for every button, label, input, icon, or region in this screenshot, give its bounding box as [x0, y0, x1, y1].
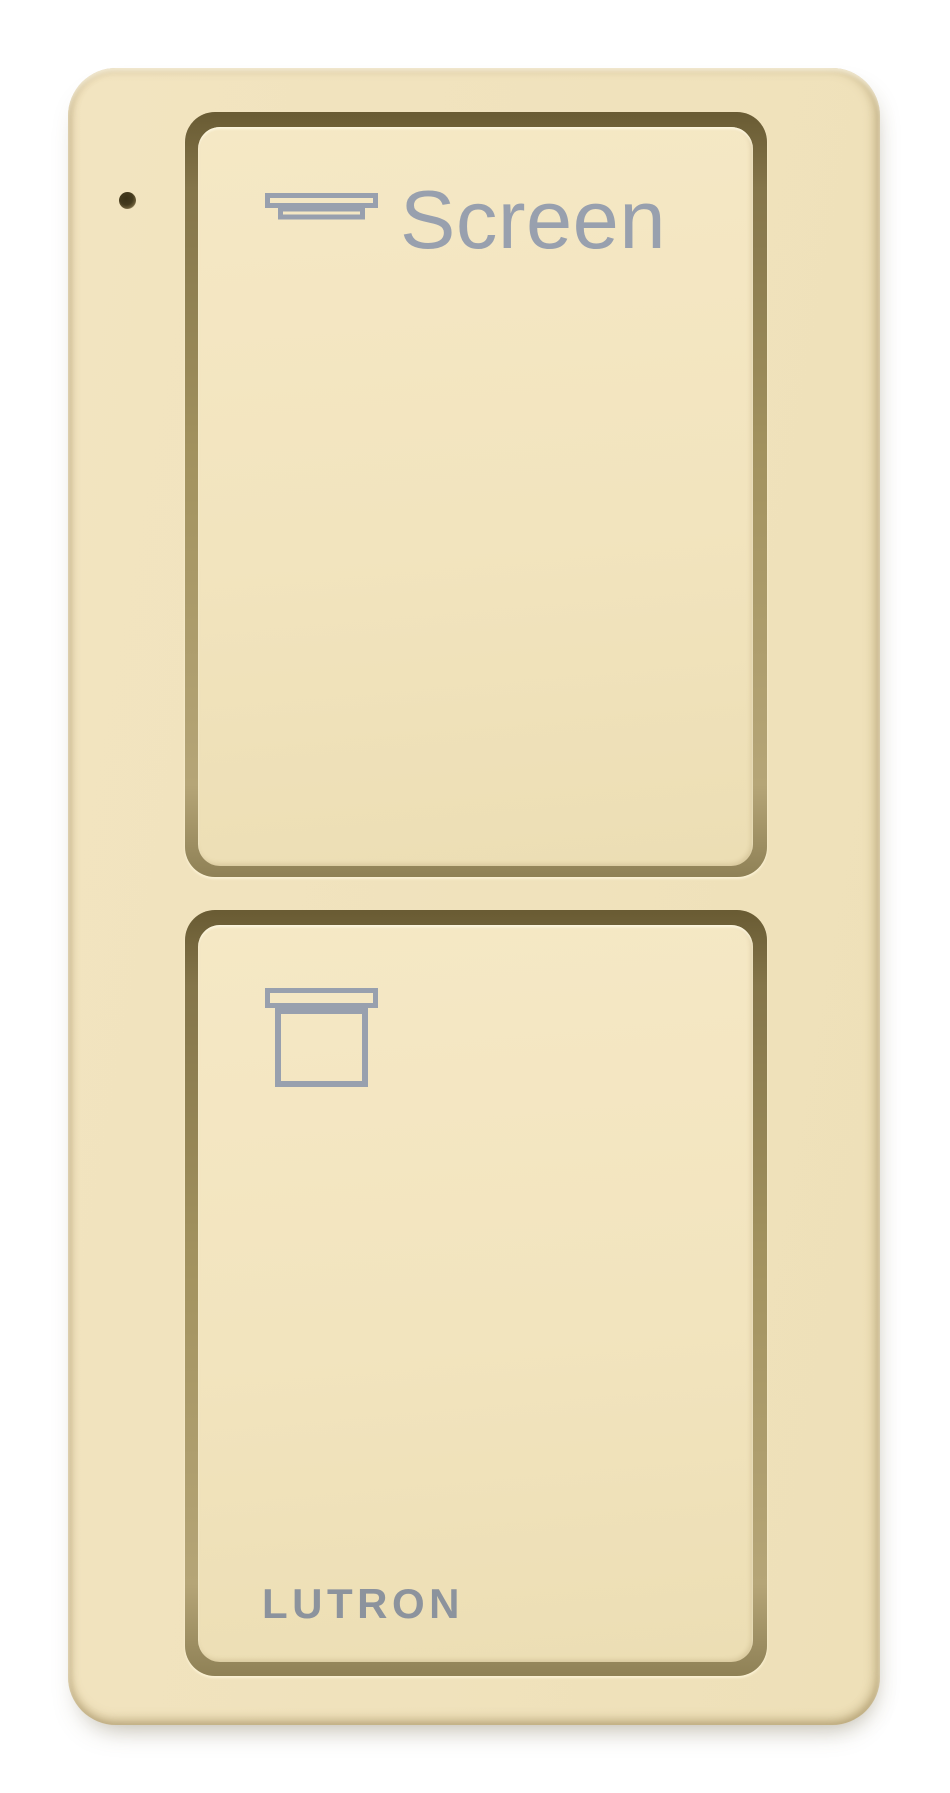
led-indicator [119, 192, 136, 209]
screen-lower-button[interactable]: LUTRON [198, 925, 753, 1662]
product-photo: Screen LUTRON [0, 0, 950, 1793]
screen-lowered-icon [265, 988, 378, 1088]
pico-remote-body: Screen LUTRON [68, 68, 880, 1725]
top-button-well: Screen [185, 112, 767, 877]
brand-logo: LUTRON [262, 1583, 464, 1625]
screen-button-label: Screen [400, 178, 666, 261]
screen-raise-button[interactable]: Screen [198, 127, 753, 866]
screen-raised-icon [265, 193, 378, 222]
bottom-button-well: LUTRON [185, 910, 767, 1676]
